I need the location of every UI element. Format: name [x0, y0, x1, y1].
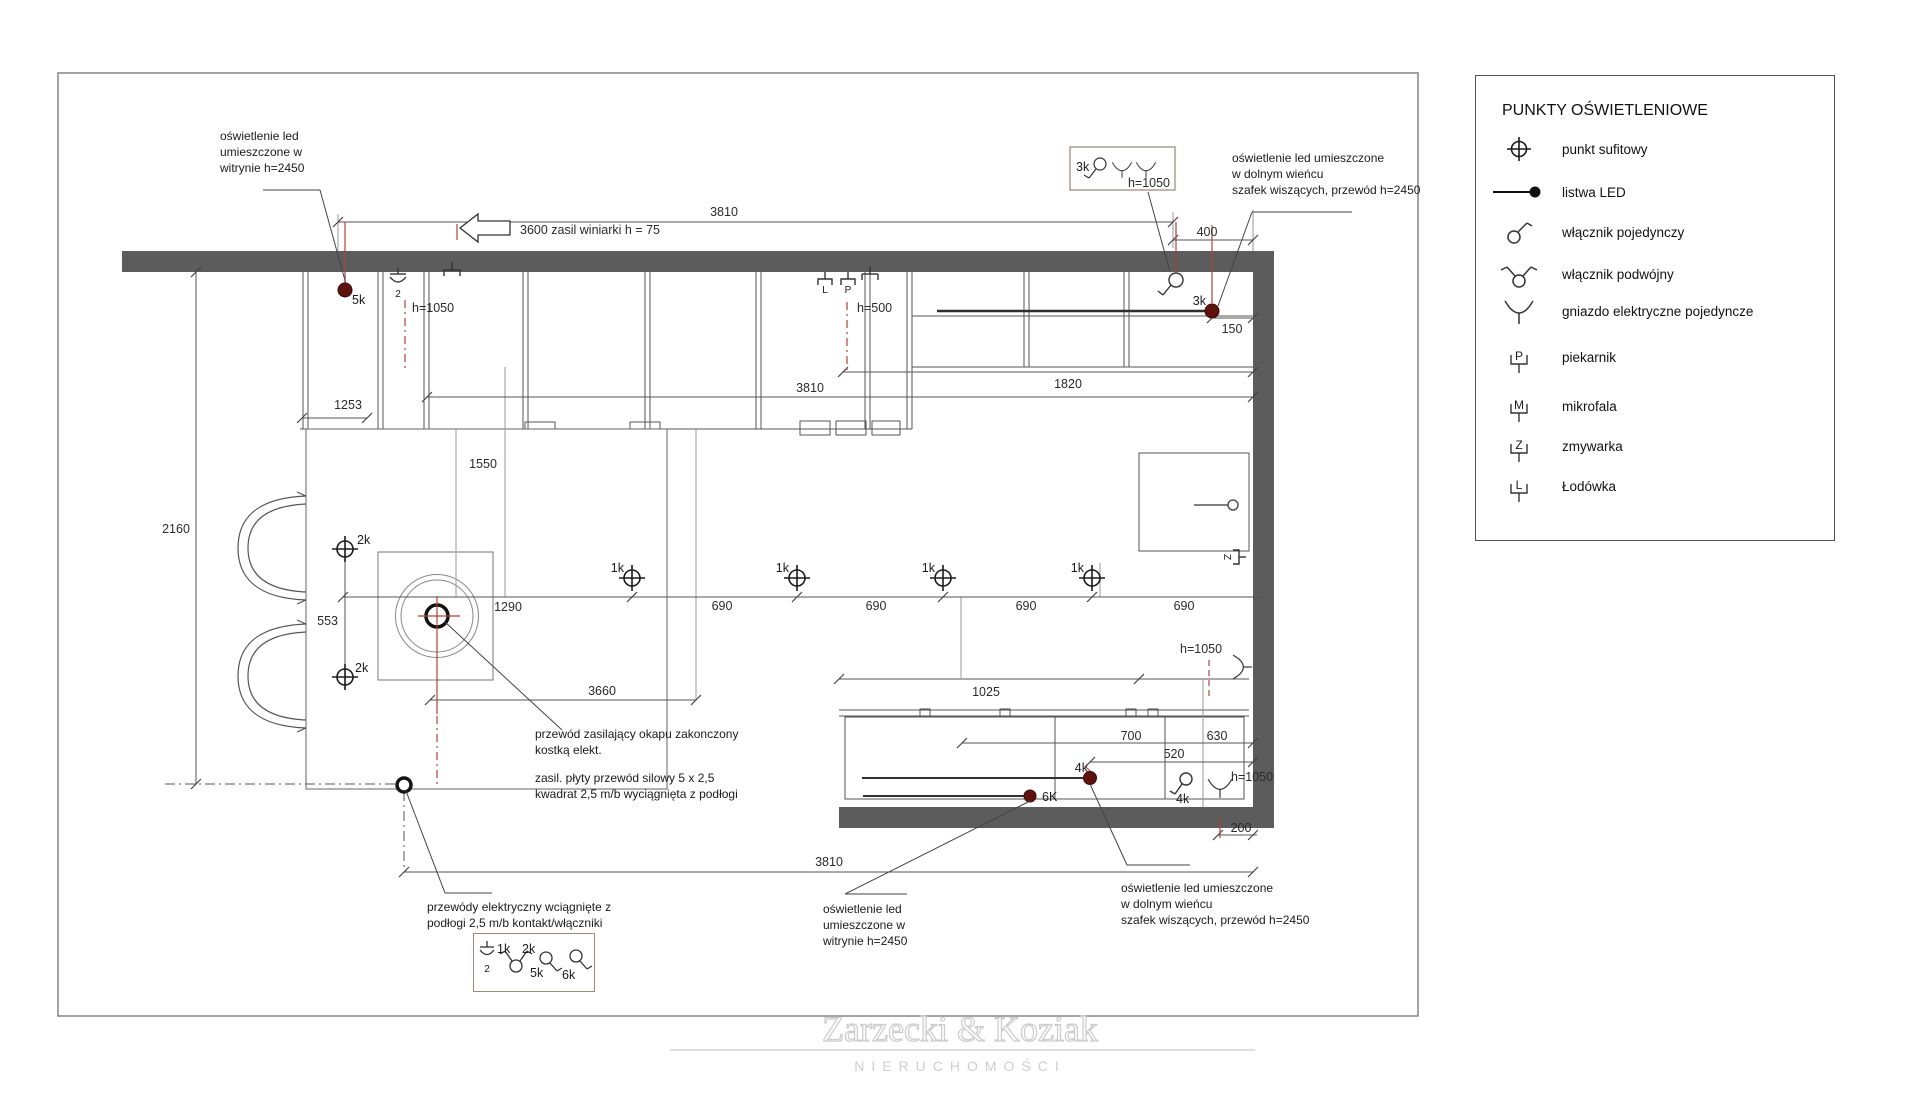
svg-text:M: M: [1514, 398, 1524, 412]
dim-h1050-box: h=1050: [1128, 176, 1170, 190]
annotation-hood-power: przewód zasilający okapu zakonczony kost…: [535, 726, 738, 758]
floor-contact-point: [397, 778, 411, 792]
led-dots: [338, 283, 1219, 802]
annotation-hob-power: zasil. płyty przewód silowy 5 x 2,5 kwad…: [535, 770, 738, 802]
top-cabinets: [300, 272, 912, 435]
right-side-cabinet: [1139, 453, 1249, 551]
single-switch-icon: [1158, 273, 1183, 295]
dim-630: 630: [1207, 729, 1228, 743]
dim-1820: 1820: [1054, 377, 1082, 391]
dim-150: 150: [1222, 322, 1243, 336]
watermark-logo: Zarzecki & Koziak: [822, 1008, 1098, 1050]
label-fridge-letter: L: [822, 285, 828, 296]
dim-1290: 1290: [494, 600, 522, 614]
microwave-icon: M: [1476, 388, 1562, 424]
fridge-icon: [818, 272, 832, 285]
dim-200: 200: [1231, 821, 1252, 835]
single-switch-icon: [1170, 773, 1192, 794]
annotation-led-wieniec-top: oświetlenie led umieszczone w dolnym wie…: [1232, 150, 1420, 198]
red-guides: [345, 222, 1220, 838]
label-4k-1: 4k: [1075, 761, 1089, 775]
legend-item-piekarnik: P piekarnik: [1476, 342, 1834, 372]
legend-item-zmywarka: Z zmywarka: [1476, 431, 1834, 461]
dim-3810-bottom: 3810: [815, 855, 843, 869]
dim-700: 700: [1121, 729, 1142, 743]
oven-icon: [841, 272, 855, 285]
svg-text:Z: Z: [1221, 554, 1232, 560]
dim-h500: h=500: [857, 301, 892, 315]
label-1k-2: 1k: [776, 561, 790, 575]
label-2k-2: 2k: [355, 661, 369, 675]
led-dot-5k: [338, 283, 352, 297]
label-double-socket: 2: [395, 289, 401, 300]
dishwasher-icon: Z: [1476, 428, 1562, 464]
fridge-icon: L: [1476, 468, 1562, 504]
annotation-led-vitrine-bottom: oświetlenie led umieszczone w witrynie h…: [823, 901, 907, 949]
legend-panel: PUNKTY OŚWIETLENIOWE punkt sufitowy list…: [1475, 75, 1835, 541]
dimension-texts: 3810 3600 zasil winiarki h = 75 400 150 …: [162, 176, 1273, 869]
socket-icon: [1476, 294, 1562, 328]
legend-item-punkt-sufitowy: punkt sufitowy: [1476, 134, 1834, 164]
led-dot-6k: [1024, 790, 1036, 802]
annotation-floor-wires: przewódy elektryczny wciągnięte z podłog…: [427, 899, 611, 931]
label-1k-3: 1k: [922, 561, 936, 575]
arrow-icon: [460, 214, 510, 242]
legend-item-wlacznik-pojedynczy: włącznik pojedynczy: [1476, 217, 1834, 247]
label-4k-2: 4k: [1176, 792, 1190, 806]
dim-3810-mid: 3810: [796, 381, 824, 395]
label-3k: 3k: [1193, 294, 1207, 308]
label-5k: 5k: [352, 293, 366, 307]
dim-1253: 1253: [334, 398, 362, 412]
label-1k-1: 1k: [611, 561, 625, 575]
dim-520: 520: [1164, 747, 1185, 761]
double-switch-icon: [1476, 258, 1562, 290]
note-winiarka: 3600 zasil winiarki h = 75: [520, 223, 660, 237]
floor-plan-page: Zarzecki & Koziak NIERUCHOMOŚCI: [0, 0, 1920, 1099]
legend-item-gniazdo: gniazdo elektryczne pojedyncze: [1476, 296, 1834, 326]
legend-item-mikrofala: M mikrofala: [1476, 391, 1834, 421]
dim-h1050-bottomright: h=1050: [1231, 770, 1273, 784]
plan-symbols: Z: [390, 262, 1252, 798]
right-upper-cabinets: [912, 272, 1253, 367]
dim-3660: 3660: [588, 684, 616, 698]
dim-3810-top: 3810: [710, 205, 738, 219]
dim-690-2: 690: [866, 599, 887, 613]
label-2k-1: 2k: [357, 533, 371, 547]
legend-item-wlacznik-podwojny: włącznik podwójny: [1476, 259, 1834, 289]
switch-symbols-box: [473, 933, 595, 992]
dim-690-3: 690: [1016, 599, 1037, 613]
annotation-led-vitrine-top: oświetlenie led umieszczone w witrynie h…: [220, 128, 304, 176]
oven-icon: P: [1476, 339, 1562, 375]
legend-item-listwa-led: listwa LED: [1476, 177, 1834, 207]
dim-553: 553: [317, 614, 338, 628]
legend-item-lodowka: L Łodówka: [1476, 471, 1834, 501]
annotation-led-wieniec-bottom: oświetlenie led umieszczone w dolnym wie…: [1121, 880, 1309, 928]
label-oven-letter: P: [845, 285, 852, 296]
single-switch-icon: [1476, 216, 1562, 248]
dim-h1050-topleft: h=1050: [412, 301, 454, 315]
dishwasher-icon: Z: [1221, 550, 1246, 564]
watermark-divider: [670, 1049, 1255, 1051]
dim-400: 400: [1197, 225, 1218, 239]
dim-690-4: 690: [1174, 599, 1195, 613]
label-1k-4: 1k: [1071, 561, 1085, 575]
led-strips: [862, 311, 1207, 796]
watermark-subtitle: NIERUCHOMOŚCI: [854, 1058, 1066, 1074]
label-6k: 6K: [1042, 790, 1058, 804]
ceiling-point-icon: [1476, 134, 1562, 164]
svg-text:L: L: [1516, 478, 1523, 492]
legend-title: PUNKTY OŚWIETLENIOWE: [1502, 102, 1708, 120]
led-strip-icon: [1476, 177, 1562, 207]
chairs: [238, 492, 306, 732]
svg-text:Z: Z: [1515, 438, 1522, 452]
label-3k-box: 3k: [1076, 160, 1090, 174]
leader-lines: [263, 190, 1352, 894]
socket-icon: [1208, 779, 1232, 798]
dim-1025: 1025: [972, 685, 1000, 699]
dim-690-1: 690: [712, 599, 733, 613]
svg-text:P: P: [1515, 349, 1523, 363]
dim-1550: 1550: [469, 457, 497, 471]
dim-h1050-midright: h=1050: [1180, 642, 1222, 656]
led-dot-3k: [1205, 304, 1219, 318]
drawing-border: [58, 73, 1418, 1016]
socket-icon: [1233, 655, 1252, 679]
dim-2160: 2160: [162, 522, 190, 536]
